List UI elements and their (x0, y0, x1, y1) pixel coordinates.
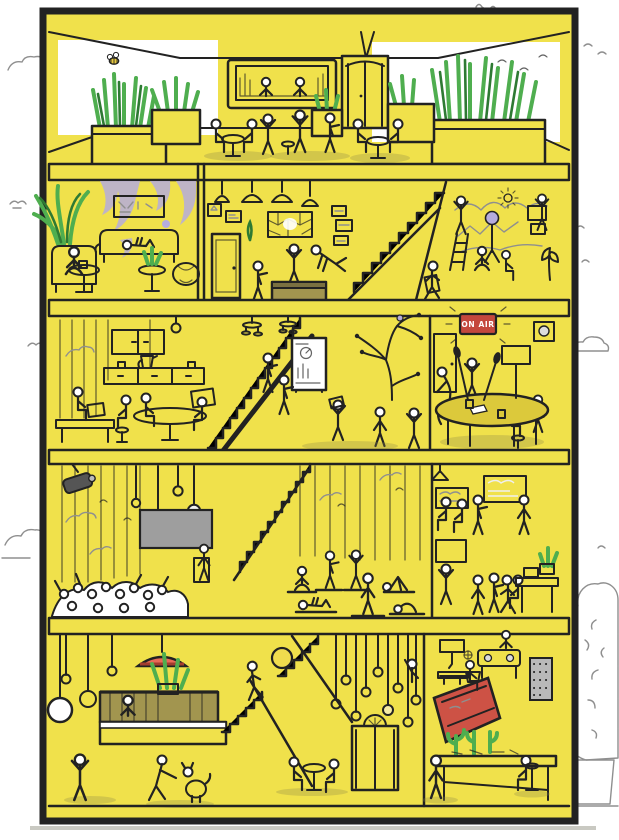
cloud-icon (2, 530, 44, 558)
bird-icon (10, 201, 26, 208)
elevator-doors (352, 715, 398, 790)
building-cutaway-illustration: ON AIR (0, 0, 619, 840)
pegboard-tools (530, 658, 552, 700)
flipchart (292, 338, 326, 392)
floor-beam (49, 618, 569, 634)
bird-icon (577, 226, 589, 262)
ball (272, 648, 292, 668)
presentation-screen (140, 510, 212, 548)
elevator-doors (342, 56, 388, 128)
floor-beam (49, 164, 569, 180)
door (212, 234, 240, 298)
back-counter (100, 692, 218, 722)
building: ON AIR (34, 11, 575, 821)
rooftop-bar (228, 60, 336, 108)
floor-beam (49, 450, 569, 464)
bird-icon (584, 44, 606, 54)
front-counter (100, 722, 226, 744)
bird-icon (598, 546, 605, 548)
illustration-canvas: ON AIR (0, 0, 619, 840)
on-air-label: ON AIR (461, 320, 494, 329)
sun-doodle (504, 194, 512, 202)
